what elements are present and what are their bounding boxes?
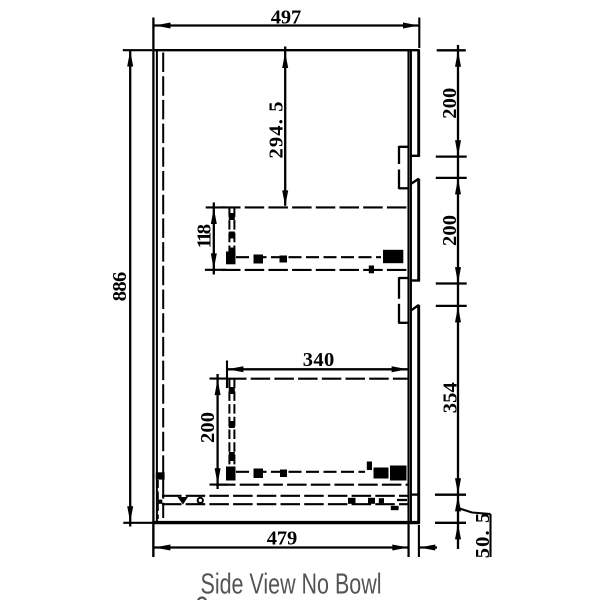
svg-text:294. 5: 294. 5	[266, 102, 288, 159]
svg-text:200: 200	[439, 88, 461, 119]
svg-text:479: 479	[267, 527, 298, 549]
svg-text:497: 497	[271, 6, 302, 28]
svg-text:50. 5: 50. 5	[472, 513, 494, 559]
svg-text:200: 200	[197, 412, 219, 443]
svg-text:Side View No Bowl: Side View No Bowl	[201, 569, 382, 600]
svg-text:886: 886	[109, 272, 131, 302]
svg-text:118: 118	[194, 224, 216, 249]
svg-text:354: 354	[439, 382, 461, 413]
svg-text:340: 340	[303, 349, 335, 371]
svg-text:200: 200	[439, 215, 461, 246]
